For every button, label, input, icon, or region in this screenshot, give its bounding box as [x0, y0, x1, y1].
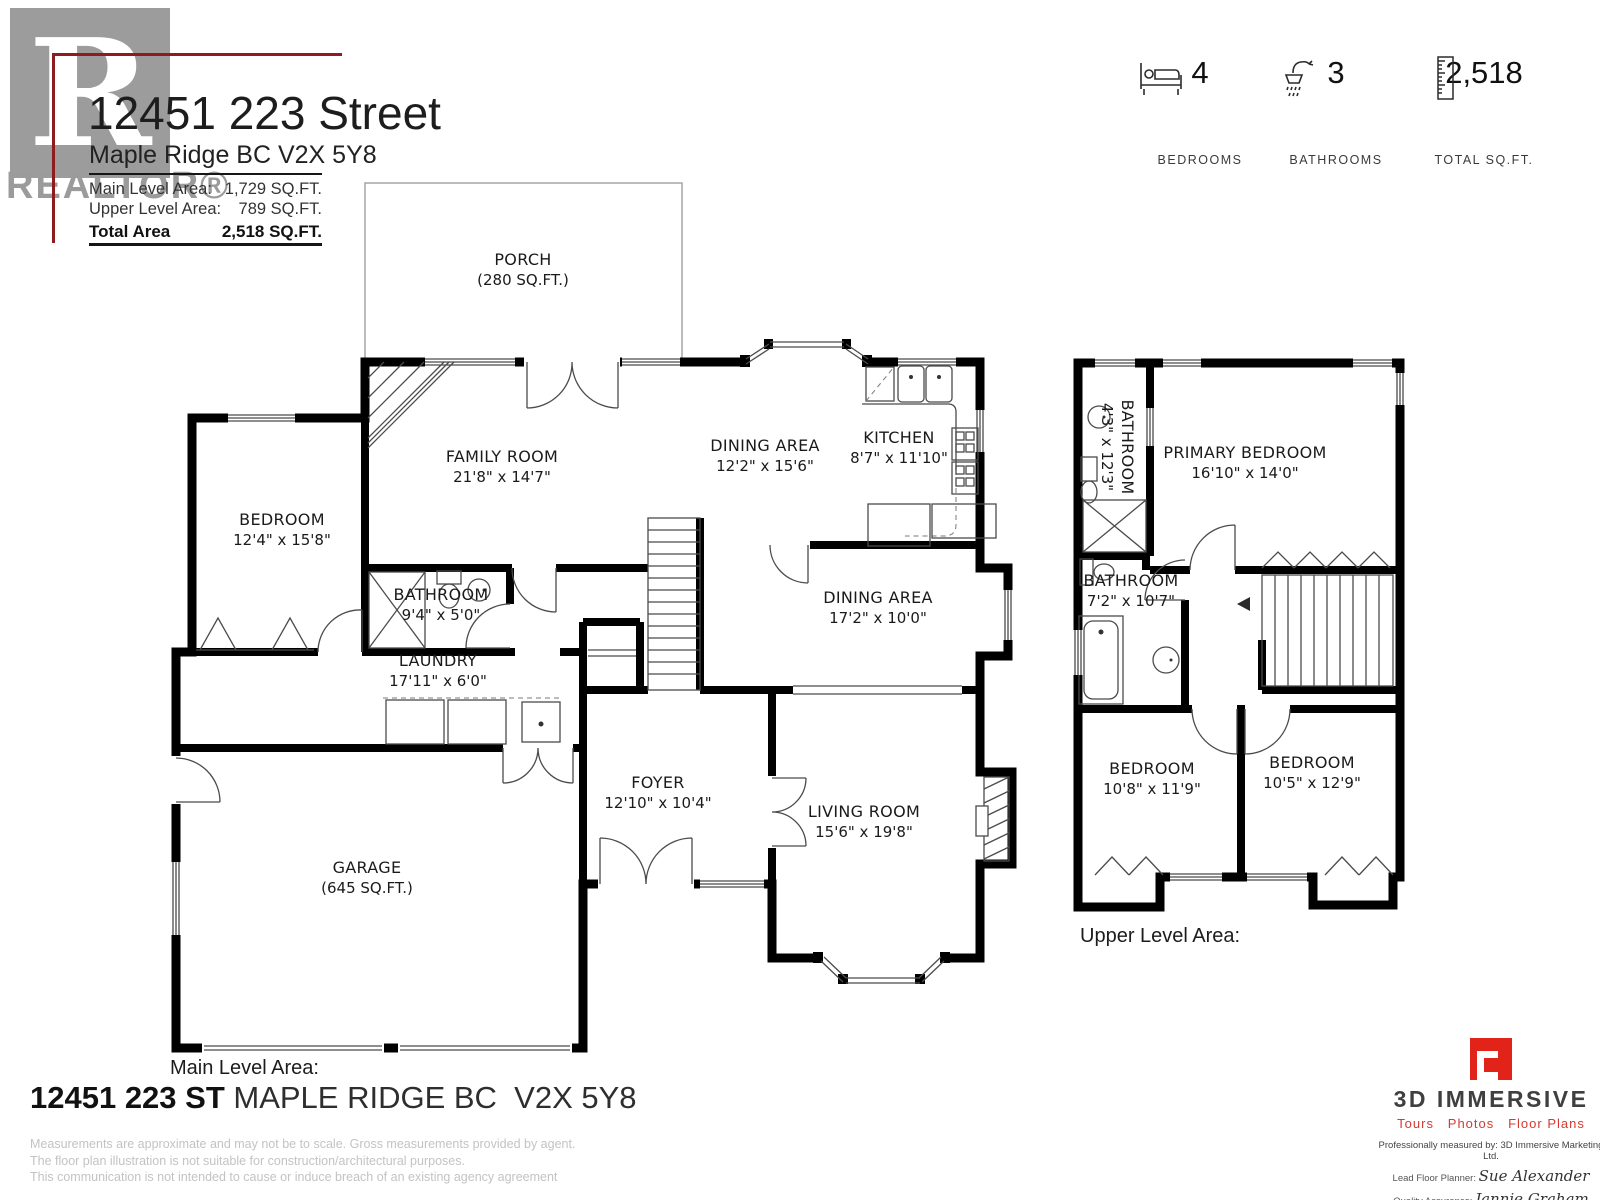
main-level-caption: Main Level Area:	[170, 1057, 319, 1080]
disclaimer-line: This communication is not intended to ca…	[30, 1169, 575, 1186]
area-value: 2,518 SQ.FT.	[222, 222, 322, 242]
area-table-rule	[89, 243, 322, 246]
area-value: 1,729 SQ.FT.	[225, 179, 322, 199]
room-label-foyer: FOYER 12'10" x 10'4"	[604, 773, 711, 813]
room-label-kitchen: KITCHEN 8'7" x 11'10"	[850, 428, 948, 468]
planner-signature: Sue Alexander	[1479, 1167, 1590, 1185]
branding-measured-by: Professionally measured by: 3D Immersive…	[1378, 1140, 1600, 1162]
fireplace-family	[368, 362, 454, 448]
branding-planner: Lead Floor Planner: Sue Alexander	[1378, 1167, 1600, 1185]
stairs-main	[648, 518, 700, 690]
room-label-porch: PORCH (280 SQ.FT.)	[477, 250, 569, 290]
branding-name: 3D IMMERSIVE	[1378, 1086, 1600, 1113]
upper-level-caption: Upper Level Area:	[1080, 925, 1240, 948]
area-table: Main Level Area: 1,729 SQ.FT. Upper Leve…	[89, 179, 322, 242]
room-label-bedroom-upper-left: BEDROOM 10'8" x 11'9"	[1103, 759, 1201, 799]
closet-bedroom-left	[1095, 857, 1163, 875]
closet-bedroom-right	[1325, 857, 1393, 875]
3d-immersive-logo-icon	[1470, 1038, 1512, 1080]
closet-main-bedroom	[196, 618, 314, 650]
room-label-bathroom-main: BATHROOM 9'4" x 5'0"	[394, 585, 489, 625]
area-row-total: Total Area 2,518 SQ.FT.	[89, 222, 322, 242]
disclaimer-line: The floor plan illustration is not suita…	[30, 1153, 575, 1170]
footer-address-street: 12451 223 ST	[30, 1080, 225, 1115]
accent-line-horizontal	[52, 53, 342, 56]
floorplan-page: R REALTOR® 12451 223 Street Maple Ridge …	[0, 0, 1600, 1200]
disclaimer-block: Measurements are approximate and may not…	[30, 1136, 575, 1186]
room-label-dining-area-2: DINING AREA 17'2" x 10'0"	[823, 588, 933, 628]
stairs-upper	[1262, 575, 1393, 686]
area-label: Upper Level Area:	[89, 199, 221, 219]
area-row-main: Main Level Area: 1,729 SQ.FT.	[89, 179, 322, 199]
room-label-dining-area-1: DINING AREA 12'2" x 15'6"	[710, 436, 820, 476]
subtitle-rule	[89, 173, 322, 175]
room-label-bathroom-upper1: BATHROOM 4'3" x 12'3"	[1097, 400, 1137, 495]
area-row-upper: Upper Level Area: 789 SQ.FT.	[89, 199, 322, 219]
room-label-bedroom-main: BEDROOM 12'4" x 15'8"	[233, 510, 331, 550]
branding-qa: Quality Assurance: Jannie Graham	[1378, 1190, 1600, 1200]
room-label-garage: GARAGE (645 SQ.FT.)	[321, 858, 413, 898]
area-value: 789 SQ.FT.	[239, 199, 322, 219]
room-label-bedroom-upper-right: BEDROOM 10'5" x 12'9"	[1263, 753, 1361, 793]
room-label-family-room: FAMILY ROOM 21'8" x 14'7"	[446, 447, 558, 487]
page-subtitle: Maple Ridge BC V2X 5Y8	[89, 141, 377, 170]
room-label-primary-bedroom: PRIMARY BEDROOM 16'10" x 14'0"	[1163, 443, 1326, 483]
footer-address-city: MAPLE RIDGE BC V2X 5Y8	[225, 1080, 637, 1115]
laundry-fixtures	[383, 698, 562, 744]
door-symbols-upper	[1145, 525, 1290, 754]
page-title: 12451 223 Street	[88, 86, 441, 140]
disclaimer-line: Measurements are approximate and may not…	[30, 1136, 575, 1153]
room-label-living-room: LIVING ROOM 15'6" x 19'8"	[808, 802, 920, 842]
footer-address: 12451 223 ST MAPLE RIDGE BC V2X 5Y8	[30, 1080, 637, 1116]
branding-block: 3D IMMERSIVE Tours Photos Floor Plans Pr…	[1378, 1038, 1600, 1200]
room-label-bathroom-upper2: BATHROOM 7'2" x 10'7"	[1084, 571, 1179, 611]
fireplace-living	[976, 777, 1009, 861]
area-label: Main Level Area:	[89, 179, 212, 199]
accent-line-vertical	[52, 53, 55, 243]
qa-signature: Jannie Graham	[1475, 1190, 1589, 1200]
closet-primary	[1262, 552, 1390, 568]
branding-tagline: Tours Photos Floor Plans	[1378, 1116, 1600, 1131]
stair-direction-arrow	[1237, 597, 1250, 611]
room-label-laundry: LAUNDRY 17'11" x 6'0"	[389, 651, 487, 691]
area-label: Total Area	[89, 222, 170, 242]
